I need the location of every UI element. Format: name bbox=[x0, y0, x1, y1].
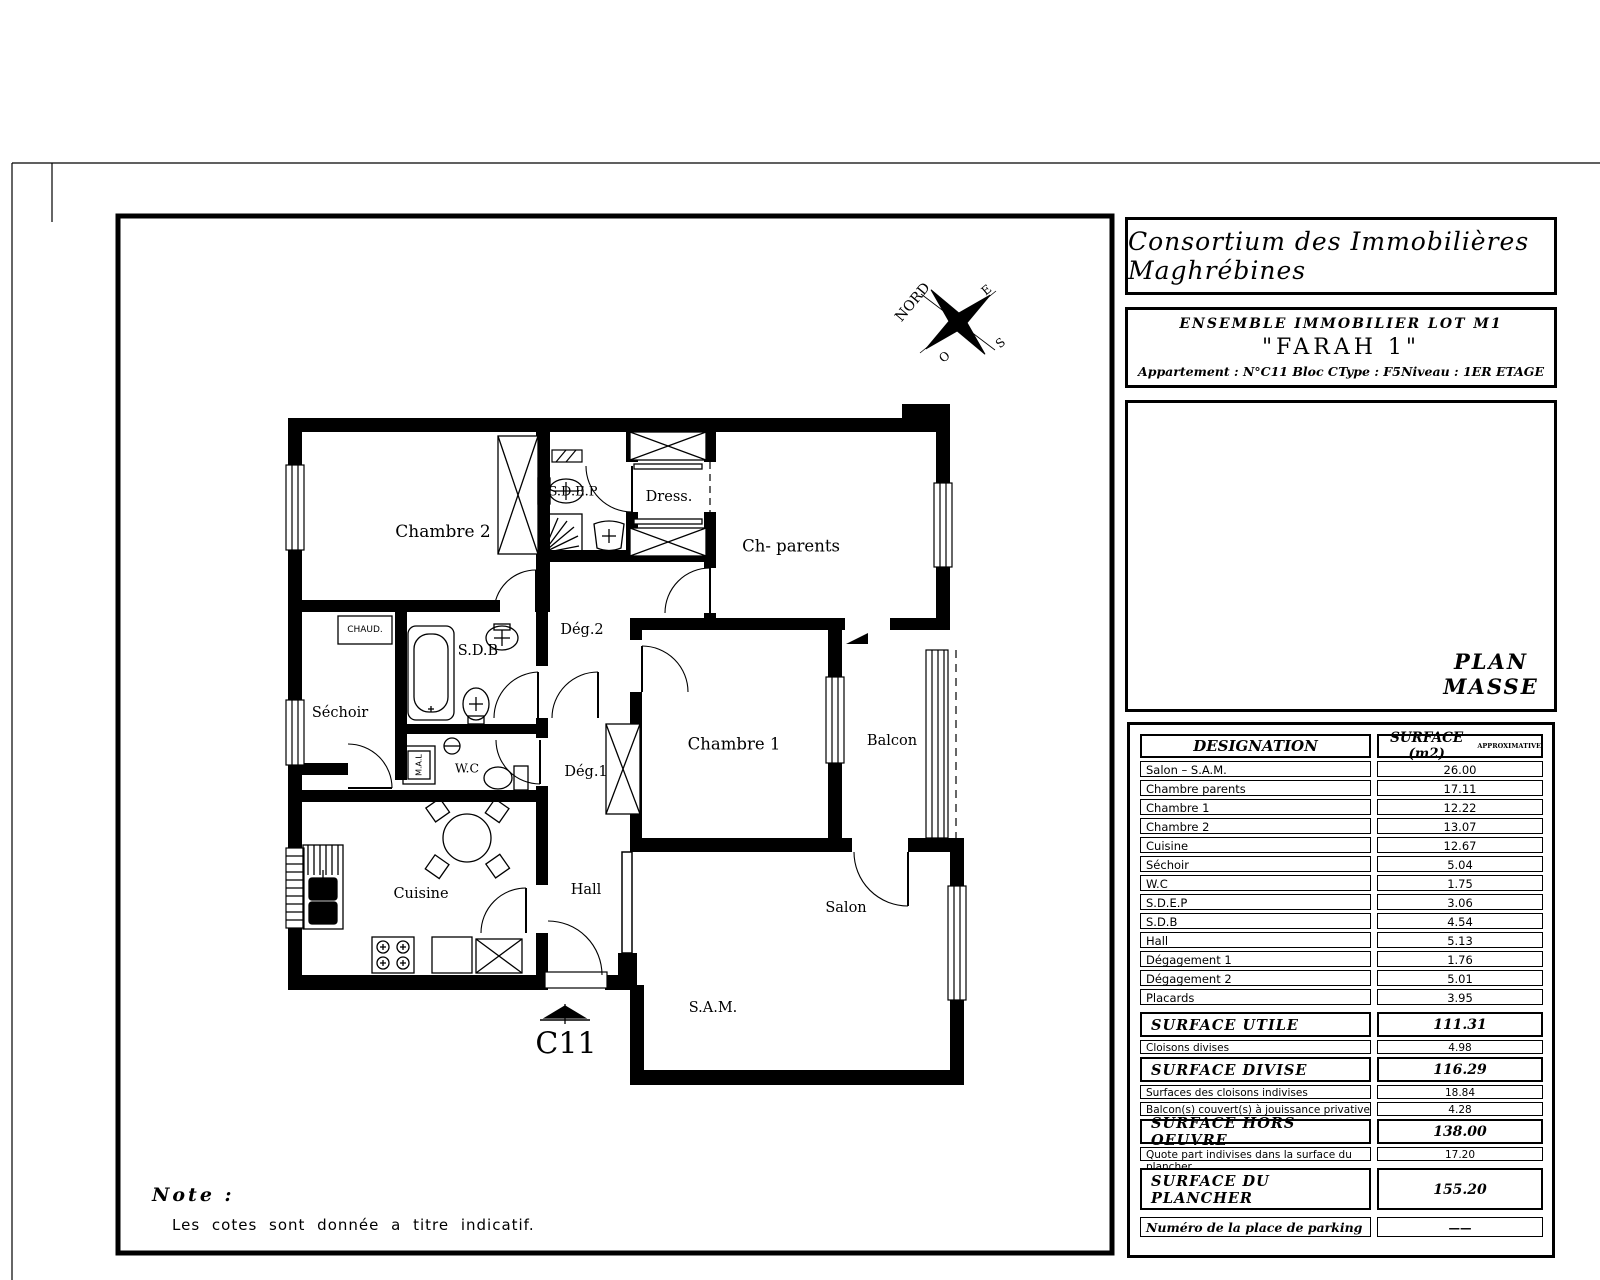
table-row: Chambre 112.22 bbox=[1140, 799, 1543, 815]
kitchen-table-icon bbox=[425, 798, 509, 878]
room-label-dress: Dress. bbox=[646, 489, 693, 505]
project-line: ENSEMBLE IMMOBILIER LOT M1 bbox=[1128, 316, 1554, 332]
table-header-row: DESIGNATION SURFACE (m2) APPROXIMATIVE bbox=[1140, 734, 1543, 758]
table-row: Hall5.13 bbox=[1140, 932, 1543, 948]
note-body: Les cotes sont donnée a titre indicatif. bbox=[172, 1216, 535, 1234]
level-info: Niveau : 1ER ETAGE bbox=[1401, 364, 1544, 379]
type-info: Type : F5 bbox=[1338, 364, 1401, 379]
toilet-icon bbox=[484, 766, 528, 790]
entrance-marker bbox=[540, 1004, 590, 1024]
room-label-balcon: Balcon bbox=[867, 733, 917, 749]
table-row: Salon – S.A.M.26.00 bbox=[1140, 761, 1543, 777]
compass-north-label: NORD bbox=[892, 280, 934, 325]
summary-row-surface-utile: SURFACE UTILE111.31 bbox=[1140, 1012, 1543, 1037]
table-row: Cloisons divises4.98 bbox=[1140, 1040, 1543, 1054]
room-label-ch-parents: Ch- parents bbox=[742, 537, 840, 556]
parking-row: Numéro de la place de parking—— bbox=[1140, 1217, 1543, 1237]
note-title: Note : bbox=[152, 1184, 235, 1206]
company-title-block: Consortium des Immobilières Maghrébines bbox=[1125, 217, 1557, 295]
table-row: Dégagement 11.76 bbox=[1140, 951, 1543, 967]
compass-west-label: O bbox=[936, 348, 953, 365]
site-plan-title: PLAN MASSE bbox=[1443, 649, 1538, 699]
unit-code-label: C11 bbox=[535, 1027, 596, 1062]
table-row: Balcon(s) couvert(s) à jouissance privat… bbox=[1140, 1102, 1543, 1116]
summary-row-surface-divise: SURFACE DIVISE116.29 bbox=[1140, 1057, 1543, 1082]
summary-row-plancher: SURFACE DU PLANCHER155.20 bbox=[1140, 1168, 1543, 1210]
bathtub-icon bbox=[408, 626, 454, 720]
kitchen-sink-icon bbox=[303, 845, 343, 929]
room-label-sdep: S.D.E.P bbox=[548, 485, 597, 500]
project-title-block: ENSEMBLE IMMOBILIER LOT M1 "FARAH 1" App… bbox=[1125, 307, 1557, 388]
table-row: S.D.B4.54 bbox=[1140, 913, 1543, 929]
table-row: Chambre parents17.11 bbox=[1140, 780, 1543, 796]
room-label-sechoir: Séchoir bbox=[312, 705, 368, 721]
compass-rose: NORD E O S bbox=[892, 280, 1008, 366]
table-row: Séchoir5.04 bbox=[1140, 856, 1543, 872]
company-name: Consortium des Immobilières Maghrébines bbox=[1128, 227, 1554, 285]
surface-table: DESIGNATION SURFACE (m2) APPROXIMATIVE S… bbox=[1127, 722, 1555, 1258]
table-row: Surfaces des cloisons indivises18.84 bbox=[1140, 1085, 1543, 1099]
table-row: Chambre 213.07 bbox=[1140, 818, 1543, 834]
room-label-cuisine: Cuisine bbox=[393, 886, 448, 902]
room-label-deg2: Dég.2 bbox=[560, 622, 603, 638]
room-label-chambre2: Chambre 2 bbox=[395, 522, 491, 542]
table-row: Dégagement 25.01 bbox=[1140, 970, 1543, 986]
room-label-hall: Hall bbox=[571, 882, 602, 898]
table-row: Placards3.95 bbox=[1140, 989, 1543, 1005]
stove-icon bbox=[372, 937, 414, 973]
compass-south-label: S bbox=[993, 335, 1008, 351]
table-row: Cuisine12.67 bbox=[1140, 837, 1543, 853]
summary-row-hors-oeuvre: SURFACE HORS OEUVRE138.00 bbox=[1140, 1119, 1543, 1144]
room-label-sam: S.A.M. bbox=[689, 1000, 738, 1016]
table-row: S.D.E.P3.06 bbox=[1140, 894, 1543, 910]
hall-partition bbox=[622, 852, 632, 953]
project-name: "FARAH 1" bbox=[1128, 335, 1554, 360]
label-mal: M.A.L bbox=[415, 754, 424, 776]
bidet-icon bbox=[594, 521, 624, 551]
apartment-info: Appartement : N°C11 Bloc C bbox=[1138, 364, 1338, 379]
table-row: W.C1.75 bbox=[1140, 875, 1543, 891]
table-row: Quote part indivises dans la surface du … bbox=[1140, 1147, 1543, 1161]
appliance-icon bbox=[432, 937, 472, 973]
room-label-chambre1: Chambre 1 bbox=[688, 735, 781, 754]
header-designation: DESIGNATION bbox=[1140, 734, 1371, 758]
room-label-deg1: Dég.1 bbox=[564, 764, 607, 780]
room-label-wc: W.C bbox=[455, 761, 479, 776]
drawing-sheet: NORD E O S bbox=[0, 0, 1600, 1280]
room-label-sdb: S.D.B bbox=[458, 643, 498, 659]
pedestal-sink-icon bbox=[463, 688, 489, 724]
header-surface: SURFACE (m2) APPROXIMATIVE bbox=[1377, 734, 1543, 758]
compass-east-label: E bbox=[979, 282, 995, 298]
room-label-salon: Salon bbox=[825, 900, 866, 916]
label-chaud: CHAUD. bbox=[347, 625, 383, 635]
